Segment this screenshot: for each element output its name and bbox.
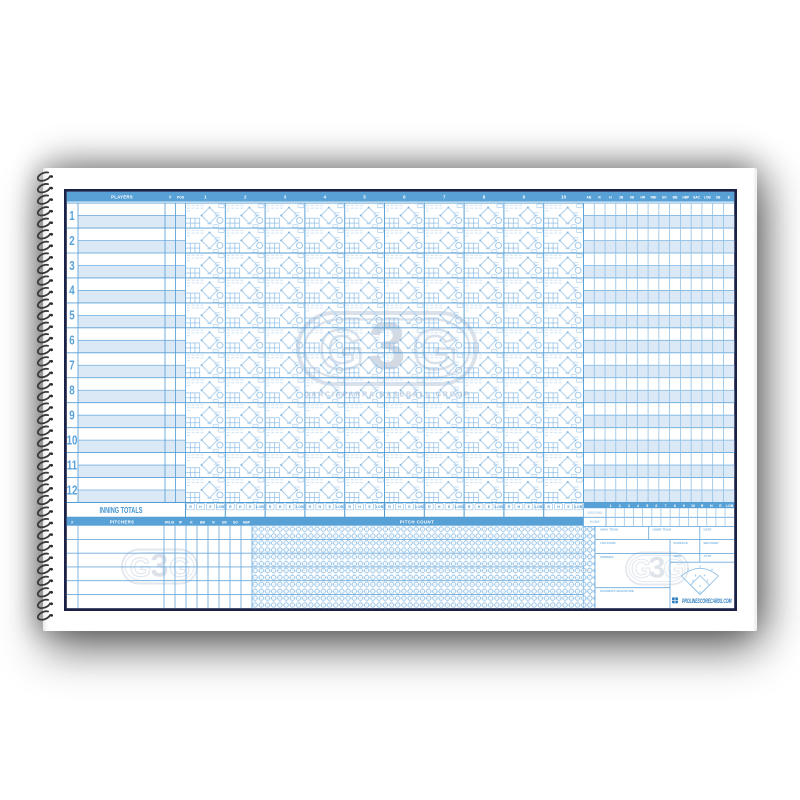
svg-text:AB: AB [587,196,592,200]
svg-text:R: R [547,505,550,509]
svg-text:7: 7 [69,360,74,373]
svg-text:PITCHERS: PITCHERS [110,519,135,524]
svg-text:R: R [229,505,232,509]
svg-text:2: 2 [69,235,74,248]
svg-text:PROLINESCORECARDS.COM: PROLINESCORECARDS.COM [682,598,732,605]
svg-text:3B: 3B [630,196,635,200]
svg-text:H: H [398,505,401,509]
svg-text:WIND: WIND [674,554,683,558]
svg-text:H: H [438,505,441,509]
svg-text:LOB: LOB [256,505,264,509]
svg-text:POS: POS [177,196,185,200]
svg-text:SB: SB [716,196,721,200]
svg-text:SCORER'S SIGNATURE: SCORER'S SIGNATURE [600,589,634,593]
svg-text:H: H [318,505,321,509]
svg-text:11: 11 [67,459,77,472]
svg-text:VISITORS: VISITORS [587,511,602,515]
svg-text:RBI: RBI [651,196,657,200]
svg-text:LOB: LOB [495,505,503,509]
svg-text:WEATHER: WEATHER [704,541,720,545]
svg-text:LOB: LOB [455,505,463,509]
svg-text:BB: BB [673,196,678,200]
svg-text:3: 3 [628,504,630,508]
svg-text:R: R [701,504,704,508]
svg-text:8: 8 [674,504,676,508]
svg-text:LOB: LOB [726,504,734,508]
svg-text:H: H [239,505,242,509]
svg-text:H: H [279,505,282,509]
svg-text:LOB: LOB [575,505,583,509]
svg-text:5: 5 [646,504,648,508]
svg-text:R: R [508,505,511,509]
svg-text:5: 5 [69,310,74,323]
svg-text:H: H [199,505,202,509]
svg-text:1: 1 [69,210,74,223]
svg-text:12: 12 [67,484,78,497]
svg-text:R: R [269,505,272,509]
svg-text:H: H [517,505,520,509]
svg-text:HR: HR [640,196,645,200]
svg-text:INNING TOTALS: INNING TOTALS [100,506,143,515]
svg-text:6: 6 [655,504,657,508]
svg-text:SO: SO [662,196,667,200]
svg-text:SAC: SAC [693,196,701,200]
svg-text:LOB: LOB [336,505,344,509]
svg-text:1: 1 [610,504,612,508]
svg-text:3: 3 [151,547,169,583]
svg-text:BB: BB [200,520,205,524]
svg-text:AWAY TEAM: AWAY TEAM [600,528,618,532]
svg-text:10: 10 [561,195,566,200]
svg-text:PITCH COUNT: PITCH COUNT [400,519,434,524]
svg-text:PLAYERS: PLAYERS [111,195,133,200]
svg-text:LOB: LOB [416,505,424,509]
svg-text:R: R [309,505,312,509]
svg-text:R: R [388,505,391,509]
svg-text:8: 8 [69,384,74,397]
svg-text:H: H [478,505,481,509]
svg-text:2B: 2B [619,196,624,200]
svg-text:LOB: LOB [217,505,225,509]
svg-text:SO: SO [233,520,238,524]
svg-text:H: H [358,505,361,509]
svg-text:2: 2 [619,504,621,508]
svg-text:HOME: HOME [590,520,600,524]
svg-text:LOB: LOB [704,196,712,200]
svg-text:UMPIRES: UMPIRES [600,555,614,559]
svg-text:10: 10 [67,434,78,447]
svg-text:LOB: LOB [376,505,384,509]
svg-text:H: H [557,505,560,509]
svg-text:DATE: DATE [704,528,712,532]
svg-text:LOCATION: LOCATION [600,541,615,545]
svg-text:H: H [710,504,713,508]
svg-text:ER: ER [222,520,227,524]
svg-text:3: 3 [69,260,74,273]
svg-text:4: 4 [69,285,75,298]
svg-text:10: 10 [691,504,695,508]
svg-text:R: R [428,505,431,509]
svg-text:W/L/S: W/L/S [165,520,175,524]
svg-text:4: 4 [637,504,639,508]
svg-text:9: 9 [683,504,685,508]
svg-text:9: 9 [69,409,74,422]
svg-text:6: 6 [69,335,74,348]
svg-text:HOME TEAM: HOME TEAM [653,528,672,532]
svg-text:LOB: LOB [296,505,304,509]
svg-text:HBP: HBP [682,196,690,200]
svg-text:LOB: LOB [535,505,543,509]
svg-text:SURFACE: SURFACE [674,541,688,545]
svg-text:HBP: HBP [243,520,251,524]
svg-text:ATTD: ATTD [704,554,713,558]
svg-text:7: 7 [665,504,667,508]
svg-text:R: R [189,505,192,509]
svg-text:R: R [348,505,351,509]
svg-text:R: R [468,505,471,509]
